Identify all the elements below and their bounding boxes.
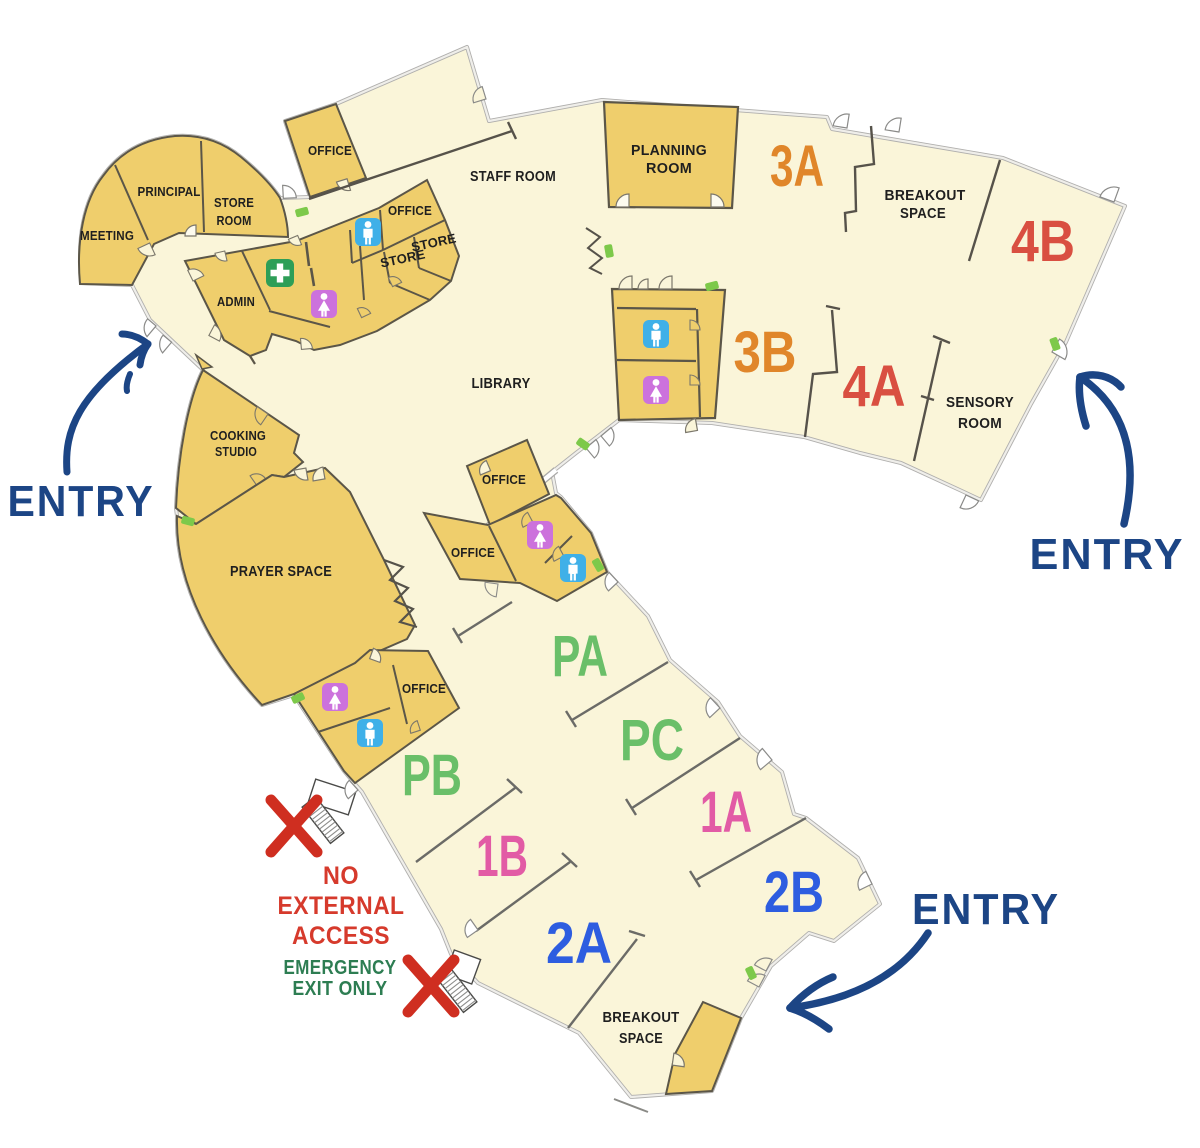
svg-text:EXIT ONLY: EXIT ONLY (293, 978, 388, 1000)
svg-text:ROOM: ROOM (646, 161, 692, 177)
svg-text:EXTERNAL: EXTERNAL (278, 892, 405, 920)
svg-text:ENTRY: ENTRY (8, 477, 155, 526)
svg-text:3A: 3A (770, 134, 824, 199)
svg-text:OFFICE: OFFICE (402, 681, 446, 696)
svg-text:BREAKOUT: BREAKOUT (603, 1010, 680, 1026)
svg-text:COOKING: COOKING (210, 428, 266, 443)
svg-text:EMERGENCY: EMERGENCY (284, 957, 397, 979)
svg-text:STORE: STORE (214, 195, 254, 210)
svg-text:PB: PB (402, 743, 462, 808)
svg-text:1A: 1A (700, 780, 752, 845)
svg-text:ADMIN: ADMIN (217, 294, 255, 309)
svg-text:ENTRY: ENTRY (912, 885, 1060, 934)
svg-text:MEETING: MEETING (80, 228, 134, 243)
svg-text:PRINCIPAL: PRINCIPAL (138, 184, 201, 199)
svg-text:ROOM: ROOM (217, 213, 252, 228)
svg-text:SPACE: SPACE (900, 206, 946, 222)
svg-text:OFFICE: OFFICE (451, 545, 495, 560)
svg-text:ROOM: ROOM (958, 416, 1002, 432)
svg-text:PA: PA (552, 624, 608, 689)
svg-text:OFFICE: OFFICE (482, 472, 526, 487)
svg-text:BREAKOUT: BREAKOUT (885, 188, 966, 204)
svg-text:4A: 4A (843, 354, 906, 419)
svg-text:SENSORY: SENSORY (946, 395, 1014, 411)
svg-text:PRAYER SPACE: PRAYER SPACE (230, 564, 332, 580)
svg-text:1B: 1B (476, 824, 528, 889)
svg-text:2A: 2A (546, 911, 612, 976)
svg-text:OFFICE: OFFICE (308, 143, 352, 158)
svg-text:OFFICE: OFFICE (388, 203, 432, 218)
svg-text:SPACE: SPACE (619, 1031, 663, 1047)
svg-text:ACCESS: ACCESS (292, 922, 390, 950)
svg-text:3B: 3B (734, 320, 797, 385)
svg-text:STUDIO: STUDIO (215, 444, 257, 459)
svg-text:4B: 4B (1011, 209, 1075, 274)
svg-text:NO: NO (323, 862, 359, 890)
svg-text:STAFF ROOM: STAFF ROOM (470, 169, 556, 185)
svg-text:ENTRY: ENTRY (1030, 530, 1185, 579)
svg-text:LIBRARY: LIBRARY (472, 376, 531, 392)
svg-text:2B: 2B (764, 860, 824, 925)
svg-text:PLANNING: PLANNING (631, 143, 707, 159)
svg-text:PC: PC (620, 708, 684, 773)
